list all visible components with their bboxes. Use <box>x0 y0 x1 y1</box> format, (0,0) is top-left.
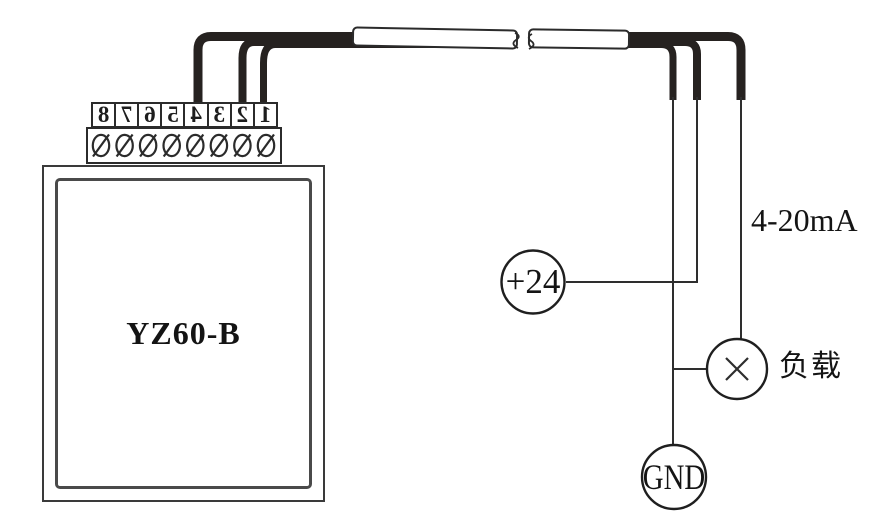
terminal-number: 7 <box>121 105 133 125</box>
terminal-number-cell: 6 <box>139 104 162 126</box>
wire-terminal1-left <box>264 45 516 105</box>
ground-node-label: GND <box>624 455 724 499</box>
ground-node-text: GND <box>643 456 705 498</box>
terminal-number-cell: 1 <box>255 104 276 126</box>
device-model-label: YZ60-B <box>126 315 240 352</box>
load-label: 负载 <box>779 347 874 379</box>
cable-sheath-segment-2 <box>529 29 629 48</box>
terminal-number: 1 <box>260 105 272 125</box>
terminal-number: 8 <box>98 105 110 125</box>
terminal-number-cell: 7 <box>116 104 139 126</box>
terminal-number: 2 <box>237 105 249 125</box>
wire-ground-right <box>532 45 673 101</box>
wire-power-drop <box>566 97 697 282</box>
cable-sheath-segment-1 <box>353 27 517 48</box>
power-node-label: +24 <box>493 260 573 304</box>
wiring-diagram: 1 2 3 4 5 6 7 8 YZ60-B +24 GND 负载 4-20mA <box>0 0 876 530</box>
device-body: YZ60-B <box>42 165 325 502</box>
terminal-number-cell: 5 <box>162 104 185 126</box>
terminal-number-cell: 8 <box>93 104 116 126</box>
device-face: YZ60-B <box>55 178 312 489</box>
cable-sheath <box>353 27 629 49</box>
circuit-wires <box>566 97 741 445</box>
terminal-number-cell: 2 <box>232 104 255 126</box>
terminal-number: 6 <box>144 105 156 125</box>
current-range-label: 4-20mA <box>751 203 876 237</box>
terminal-number: 5 <box>167 105 179 125</box>
terminal-number-strip: 1 2 3 4 5 6 7 8 <box>91 102 278 128</box>
terminal-number: 4 <box>190 105 202 125</box>
wire-terminal2-left <box>243 42 516 104</box>
terminal-number-cell: 3 <box>209 104 232 126</box>
terminal-number-cell: 4 <box>186 104 209 126</box>
terminal-number: 3 <box>213 105 225 125</box>
